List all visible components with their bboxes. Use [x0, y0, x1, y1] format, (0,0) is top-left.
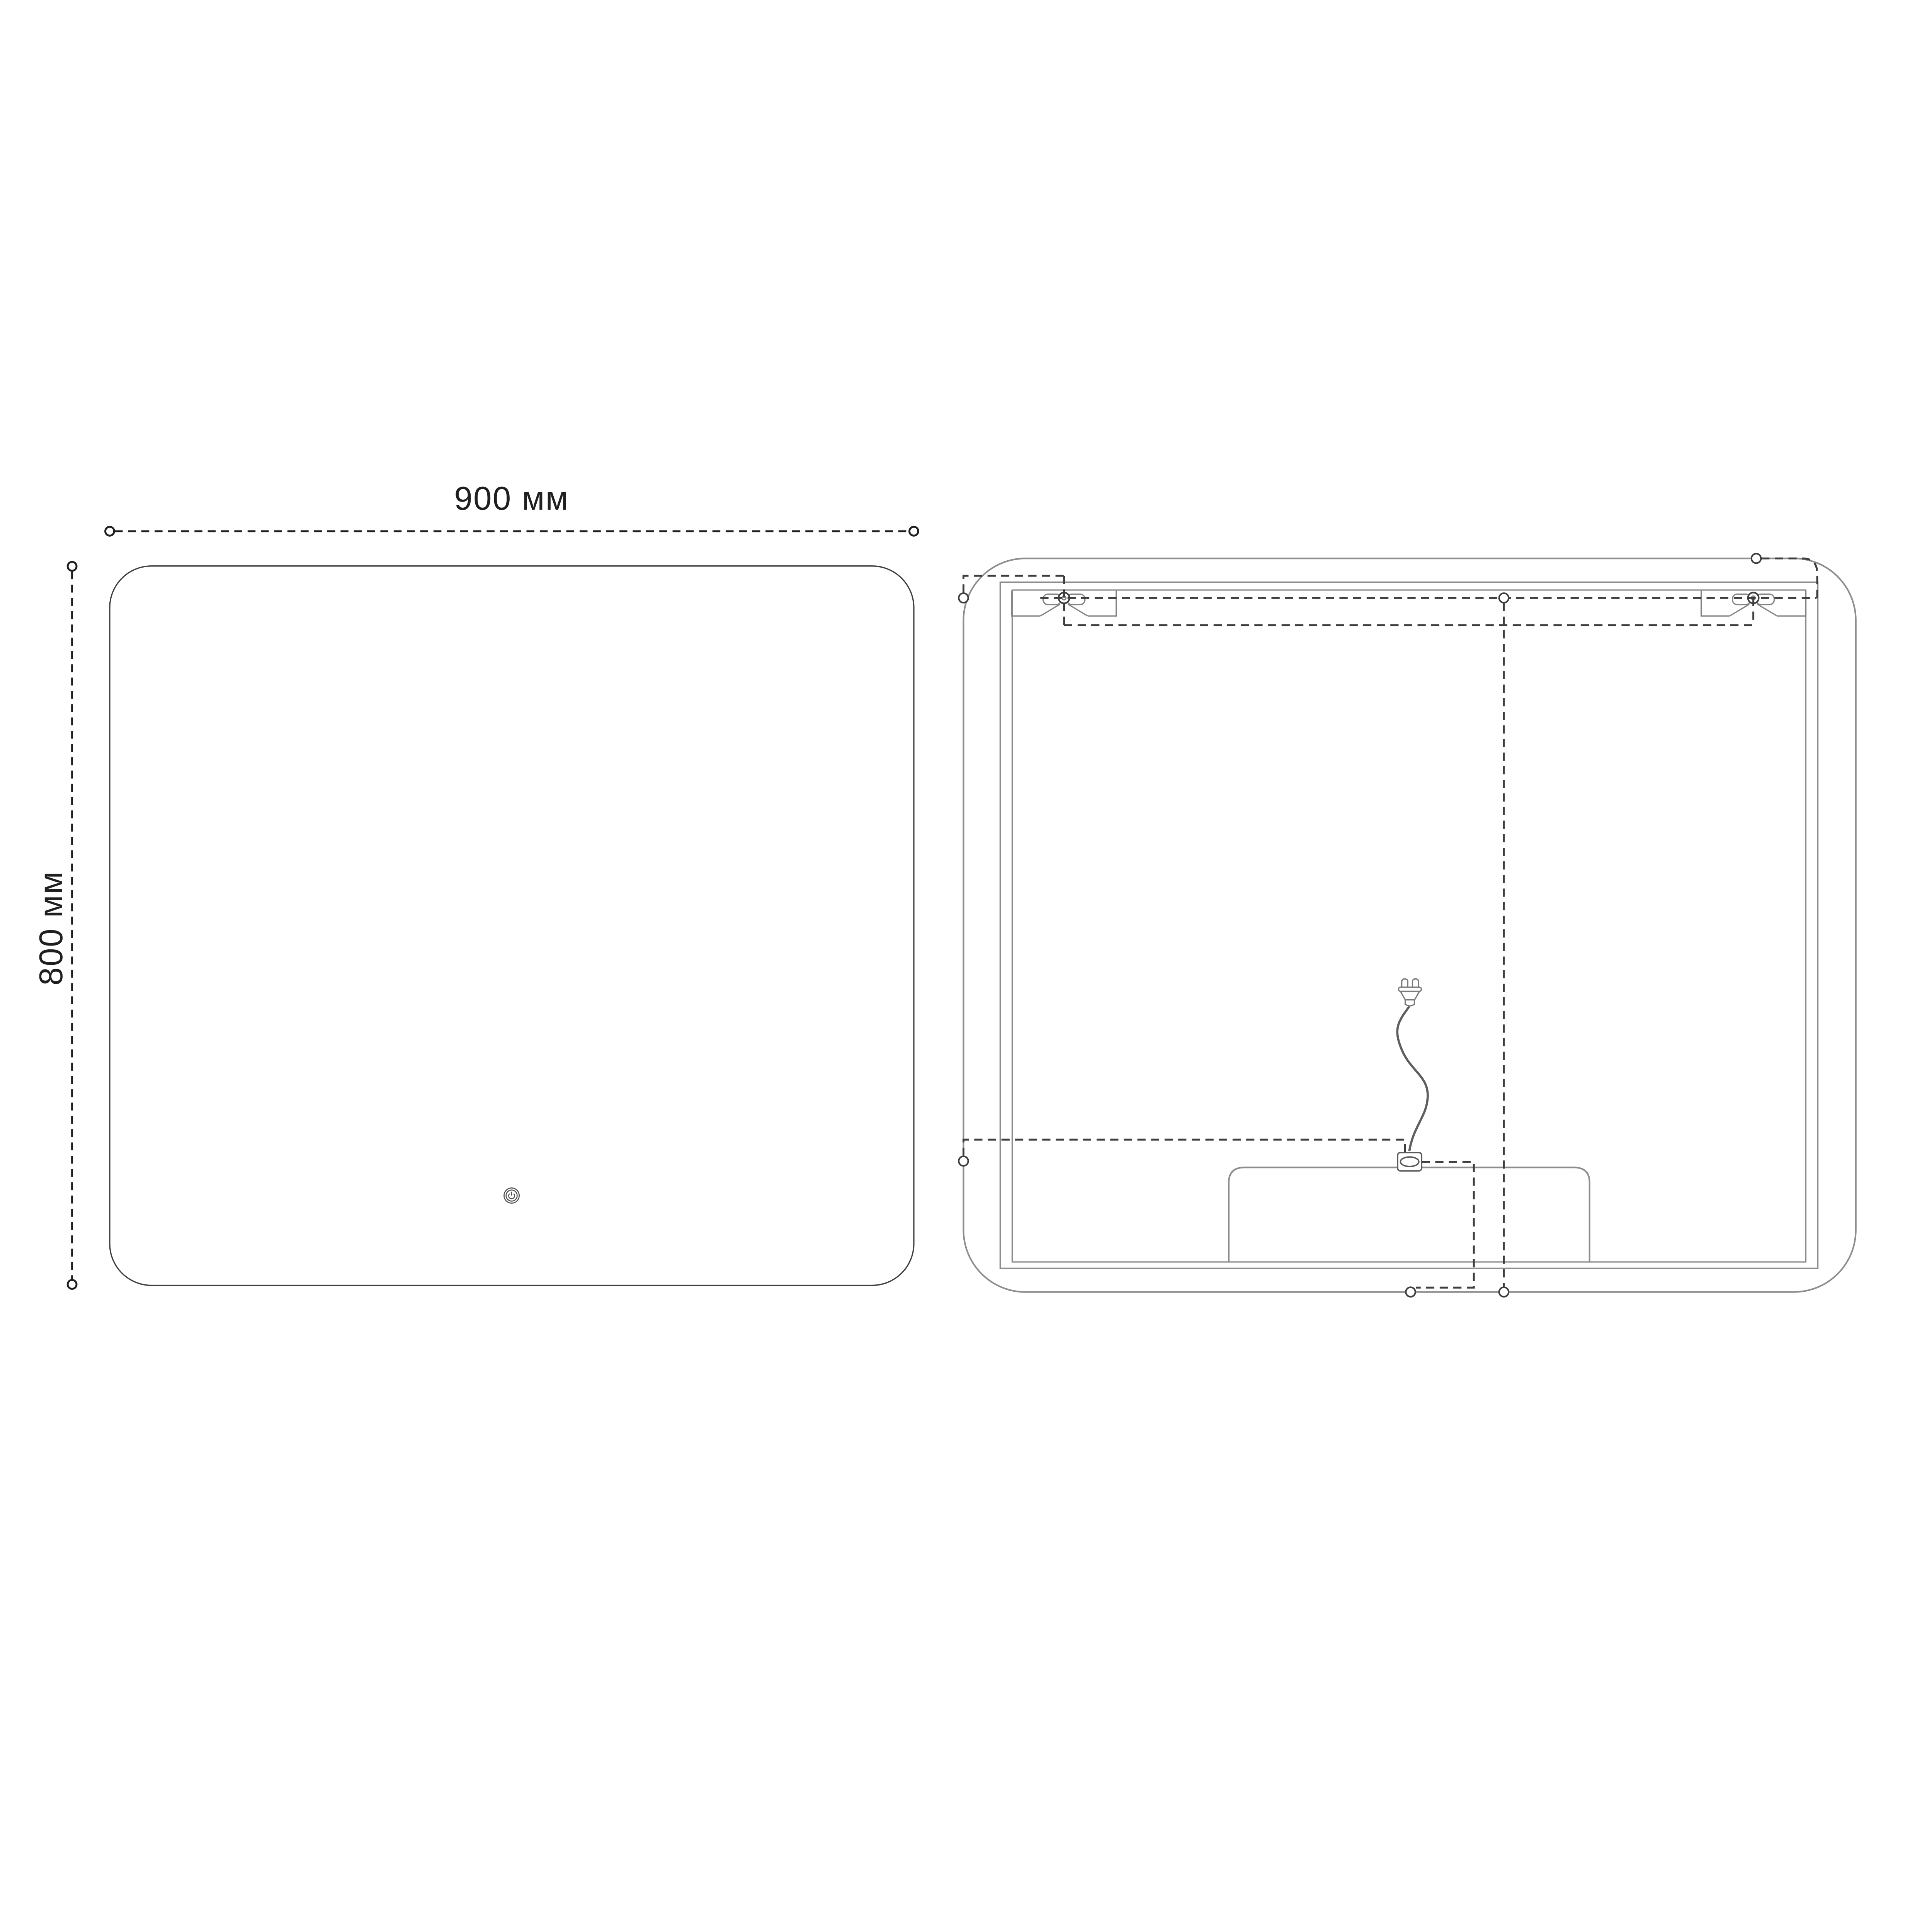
- power-cord: [1397, 1007, 1428, 1151]
- mounting-point-markers: [959, 554, 1761, 1297]
- marker-top-edge-right: [1752, 554, 1761, 563]
- width-dim-endpoint-left: [105, 527, 114, 536]
- back-view: [959, 554, 1856, 1297]
- cable-grommet: [1398, 1153, 1422, 1171]
- grommet-hole: [1400, 1157, 1418, 1167]
- width-dimension: [105, 527, 918, 536]
- height-dim-endpoint-top: [68, 562, 77, 571]
- marker-bottom-edge-left: [1406, 1287, 1415, 1297]
- marker-left-edge-bottom: [959, 1156, 968, 1166]
- drawing-sheet: 900 мм 800 мм: [0, 0, 1932, 1835]
- height-dimension-label: 800 мм: [33, 871, 70, 985]
- marker-center-axis-top: [1499, 593, 1509, 603]
- power-plug-icon: [1398, 979, 1421, 1006]
- width-dimension-label: 900 мм: [454, 480, 569, 517]
- height-dim-endpoint-bottom: [68, 1280, 77, 1289]
- front-view: [110, 566, 914, 1286]
- hidden-cable-entry-route: [963, 1139, 1405, 1156]
- plug-neck: [1405, 1000, 1415, 1006]
- touch-power-icon: [504, 1188, 519, 1203]
- width-dim-endpoint-right: [910, 527, 918, 536]
- marker-bottom-edge-right: [1499, 1287, 1509, 1297]
- mirror-technical-drawing: 900 мм 800 мм: [0, 0, 1932, 1835]
- driver-box: [1229, 1167, 1590, 1262]
- front-mirror-outline: [110, 566, 914, 1286]
- plug-body: [1400, 991, 1419, 1000]
- back-mirror-outline: [963, 558, 1855, 1292]
- hidden-topright-corner: [1761, 558, 1817, 598]
- power-cord-assembly: [1397, 979, 1428, 1171]
- hidden-mounting-lines: [963, 558, 1817, 1292]
- marker-left-edge-top: [959, 593, 968, 603]
